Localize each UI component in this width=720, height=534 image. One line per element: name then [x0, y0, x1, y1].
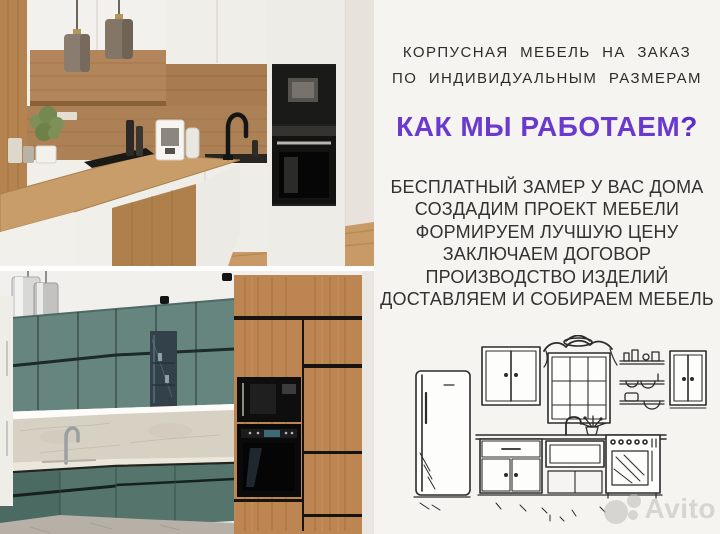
coffee-machine — [156, 120, 184, 160]
step-item: СОЗДАДИМ ПРОЕКТ МЕБЕЛИ — [374, 198, 720, 220]
built-in-microwave — [237, 377, 301, 422]
sketch-wall-cabinet-right — [670, 351, 706, 408]
sketch-plant — [580, 416, 606, 435]
sketch-fridge — [416, 371, 470, 495]
kettle — [186, 128, 199, 158]
ad-text-panel: КОРПУСНАЯ МЕБЕЛЬ НА ЗАКАЗ ПО ИНДИВИДУАЛЬ… — [374, 0, 720, 534]
ad-header: КОРПУСНАЯ МЕБЕЛЬ НА ЗАКАЗ ПО ИНДИВИДУАЛЬ… — [374, 0, 720, 92]
teal-upper-cabinets — [0, 299, 234, 412]
step-item: БЕСПЛАТНЫЙ ЗАМЕР У ВАС ДОМА — [374, 176, 720, 198]
header-line-1: КОРПУСНАЯ МЕБЕЛЬ НА ЗАКАЗ — [374, 40, 720, 66]
ad-poster: КОРПУСНАЯ МЕБЕЛЬ НА ЗАКАЗ ПО ИНДИВИДУАЛЬ… — [0, 0, 720, 534]
sketch-sink — [546, 417, 604, 493]
step-item: ЗАКЛЮЧАЕМ ДОГОВОР — [374, 243, 720, 265]
kitchen-photo-top — [0, 0, 374, 266]
glass-cabinet — [150, 331, 177, 407]
step-item: ФОРМИРУЕМ ЛУЧШУЮ ЦЕНУ — [374, 221, 720, 243]
heading-question-mark: ? — [680, 111, 698, 142]
sketch-base-cabinets — [480, 439, 542, 493]
wood-upper-cabinet — [30, 50, 166, 106]
sketch-wall-cabinet-left — [482, 347, 540, 405]
kitchen-photo-bottom — [0, 271, 374, 534]
step-item: ПРОИЗВОДСТВО ИЗДЕЛИЙ — [374, 266, 720, 288]
how-we-work-heading: КАК МЫ РАБОТАЕМ? — [374, 110, 720, 144]
sketch-stove — [606, 435, 660, 498]
built-in-oven — [237, 424, 301, 497]
built-in-oven — [272, 136, 336, 204]
work-steps-list: БЕСПЛАТНЫЙ ЗАМЕР У ВАС ДОМА СОЗДАДИМ ПРО… — [374, 176, 720, 310]
built-in-microwave — [272, 66, 336, 124]
header-line-2: ПО ИНДИВИДУАЛЬНЫМ РАЗМЕРАМ — [374, 66, 720, 92]
sketch-shelves — [620, 350, 664, 409]
heading-text: КАК МЫ РАБОТАЕМ — [396, 111, 680, 142]
step-item: ДОСТАВЛЯЕМ И СОБИРАЕМ МЕБЕЛЬ — [374, 288, 720, 310]
sketch-window — [544, 336, 617, 424]
kitchen-sketch-illustration — [400, 335, 710, 525]
